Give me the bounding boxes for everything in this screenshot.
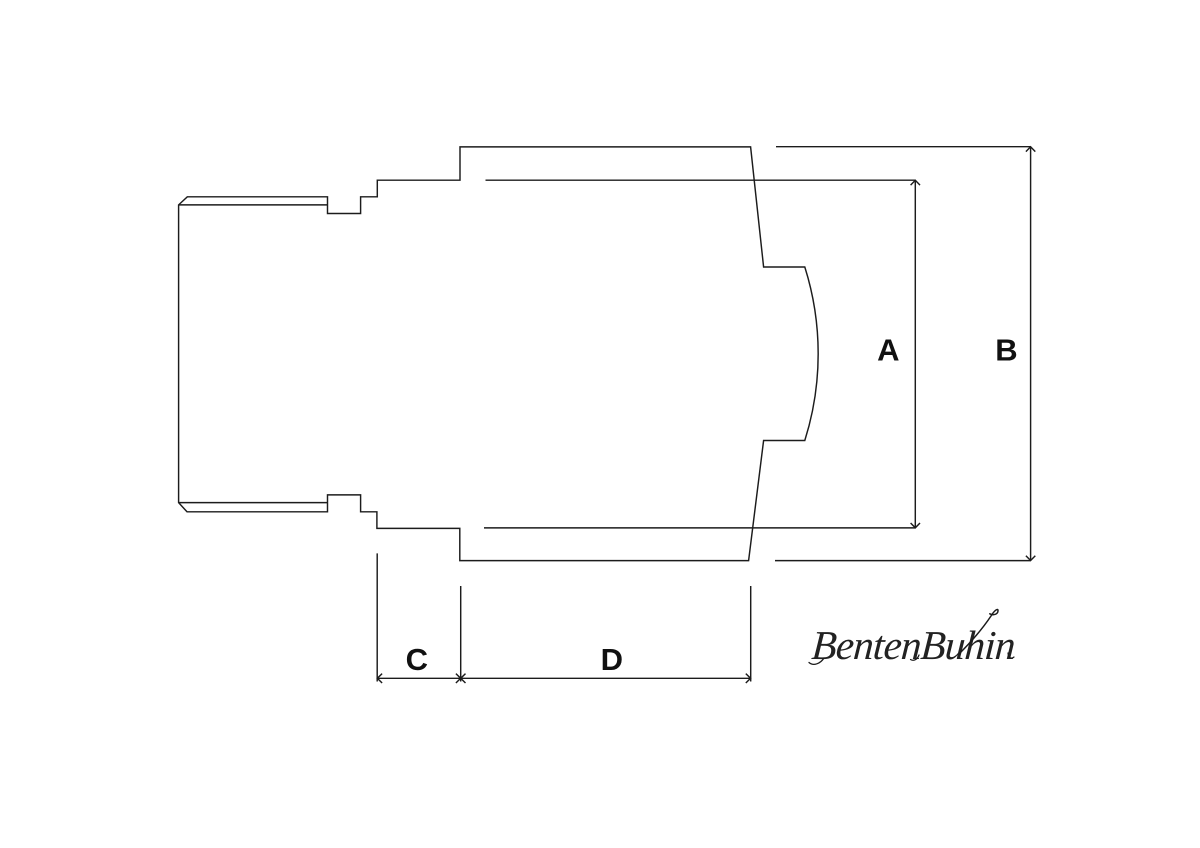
- svg-text:BentenBuhin: BentenBuhin: [810, 622, 1016, 668]
- svg-text:D: D: [601, 642, 623, 677]
- svg-text:A: A: [877, 333, 899, 368]
- svg-text:C: C: [406, 642, 428, 677]
- svg-text:B: B: [995, 333, 1017, 368]
